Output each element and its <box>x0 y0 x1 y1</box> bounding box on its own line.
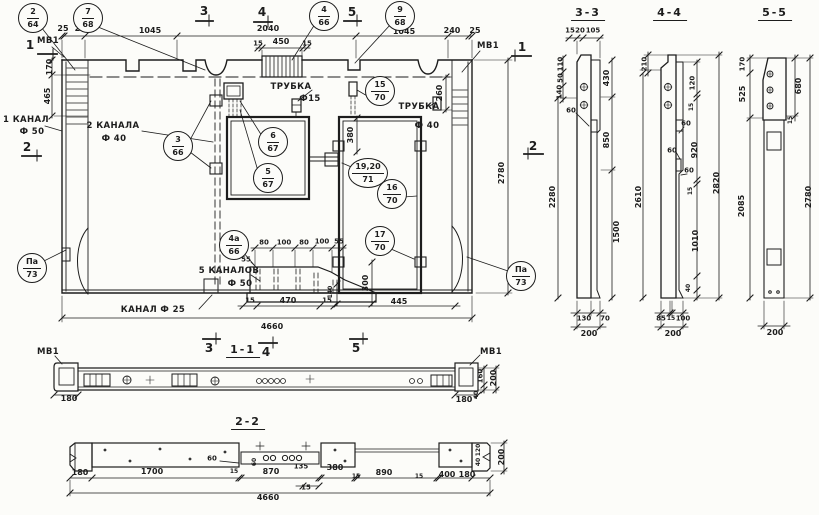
section-mark: 5 <box>352 342 360 354</box>
dim-text: 40 <box>474 391 480 399</box>
dim-text: 15 <box>322 298 332 305</box>
dim-text: 70 <box>600 316 610 323</box>
dim-text: 200 <box>490 370 498 387</box>
section-mark: 1 <box>26 39 34 51</box>
position-callout: 768 <box>73 3 103 33</box>
callout-sheet: 66 <box>228 246 239 256</box>
dim-text: 200 <box>767 329 784 337</box>
dim-text: 80 <box>259 240 269 247</box>
tube-dia: Ф 40 <box>415 122 440 131</box>
dim-text: 850 <box>603 132 611 149</box>
position-callout: Па73 <box>506 261 536 291</box>
dim-text: 2610 <box>635 186 643 208</box>
canal25-label: КАНАЛ Ф 25 <box>121 306 185 315</box>
dim-text: 380 <box>347 127 355 144</box>
dim-text: 15 <box>352 474 360 480</box>
tube-label: ТРУБКА <box>271 83 312 92</box>
annotation-layer: МВ1МВ11 КАНАЛФ 502 КАНАЛАФ 40ТРУБКАФ15ТР… <box>0 0 819 515</box>
section-mark: 4 <box>258 6 266 18</box>
dim-text: 25 <box>469 27 480 35</box>
callout-position: 16 <box>383 183 400 194</box>
canals5-label: 5 КАНАЛОВ <box>199 267 259 276</box>
dim-text: 60 <box>667 148 677 155</box>
dim-text: 55 <box>241 257 251 264</box>
section-title: 2-2 <box>231 416 265 430</box>
position-callout: 466 <box>309 1 339 31</box>
dim-text: 470 <box>280 297 297 305</box>
dim-text: 2780 <box>498 162 506 184</box>
dim-text: 920 <box>691 142 699 159</box>
callout-position: Па <box>23 257 41 268</box>
mv1-label: МВ1 <box>480 348 502 357</box>
dim-text: 200 <box>665 330 682 338</box>
dim-text: 200 <box>498 449 506 466</box>
section-mark: 1 <box>518 41 526 53</box>
dim-text: 2040 <box>257 25 279 33</box>
canal2-dia: Ф 40 <box>102 135 127 144</box>
dim-text: 15 <box>565 28 575 35</box>
dim-text: 4660 <box>261 323 283 331</box>
dim-text: 105 <box>586 28 601 35</box>
drawing-sheet: МВ1МВ11 КАНАЛФ 502 КАНАЛАФ 40ТРУБКАФ15ТР… <box>0 0 819 515</box>
dim-text: 210 <box>642 57 649 72</box>
dim-text: 120 <box>476 444 482 457</box>
dim-text: 260 <box>436 85 444 102</box>
callout-sheet: 70 <box>374 92 385 102</box>
dim-text: 135 <box>294 464 309 471</box>
dim-text: 2820 <box>713 172 721 194</box>
position-callout: 1570 <box>365 76 395 106</box>
dim-text: 110 <box>558 57 565 72</box>
callout-sheet: 67 <box>262 179 273 189</box>
dim-text: 60 <box>252 458 258 466</box>
dim-text: 1045 <box>139 27 161 35</box>
position-callout: Па73 <box>17 253 47 283</box>
dim-text: 25 <box>57 25 68 33</box>
dim-text: 40 <box>686 284 692 292</box>
callout-position: Па <box>512 265 530 276</box>
callout-sheet: 70 <box>386 195 397 205</box>
position-callout: 667 <box>258 127 288 157</box>
callout-position: 19,20 <box>352 162 383 173</box>
dim-text: 85 <box>656 316 666 323</box>
dim-text: 20 <box>575 28 585 35</box>
dim-text: 15 <box>415 474 423 480</box>
dim-text: 15 <box>245 298 255 305</box>
callout-position: 6 <box>267 131 279 142</box>
callout-sheet: 68 <box>394 17 405 27</box>
position-callout: 1770 <box>365 226 395 256</box>
callout-position: 3 <box>172 135 184 146</box>
section-title: 5-5 <box>758 7 792 21</box>
dim-text: 2085 <box>738 195 746 217</box>
callout-sheet: 70 <box>374 242 385 252</box>
callout-sheet: 66 <box>318 17 329 27</box>
dim-text: 200 <box>581 330 598 338</box>
dim-text: 15 <box>788 116 794 124</box>
callout-sheet: 68 <box>82 19 93 29</box>
canal1-dia: Ф 50 <box>20 128 45 137</box>
callout-position: 15 <box>371 80 388 91</box>
dim-text: 380 <box>327 464 344 472</box>
dim-text: 465 <box>44 88 52 105</box>
dim-text: 2780 <box>805 186 813 208</box>
callout-sheet: 64 <box>27 19 38 29</box>
dim-text: 180 <box>459 471 476 479</box>
dim-text: 4660 <box>257 494 279 502</box>
dim-text: 130 <box>577 316 592 323</box>
callout-sheet: 73 <box>515 277 526 287</box>
dim-text: 15 <box>230 469 238 475</box>
dim-text: 60 <box>684 168 694 175</box>
dim-text: 680 <box>795 78 803 95</box>
dim-text: 15 <box>302 41 312 48</box>
callout-position: 17 <box>371 230 388 241</box>
dim-text: 870 <box>263 468 280 476</box>
section-title: 3-3 <box>571 7 605 21</box>
callout-position: 9 <box>394 5 406 16</box>
dim-text: 15 <box>689 103 695 111</box>
canals5-dia: Ф 50 <box>228 280 253 289</box>
dim-text: 80 <box>299 240 309 247</box>
dim-text: 430 <box>603 70 611 87</box>
dim-text: 450 <box>273 38 290 46</box>
callout-position: 4 <box>318 5 330 16</box>
dim-text: 15 <box>253 41 263 48</box>
dim-text: 890 <box>376 469 393 477</box>
callout-sheet: 67 <box>267 143 278 153</box>
dim-text: 140 <box>557 85 564 100</box>
position-callout: 366 <box>163 131 193 161</box>
position-callout: 264 <box>18 3 48 33</box>
dim-text: 100 <box>676 316 691 323</box>
dim-text: 180 <box>61 395 78 403</box>
dim-text: 15 <box>667 316 675 322</box>
section-mark: 2 <box>23 141 31 153</box>
dim-text: 60 <box>207 456 217 463</box>
dim-text: 60 <box>681 121 691 128</box>
section-mark: 5 <box>348 6 356 18</box>
section-mark: 4 <box>262 346 270 358</box>
dim-text: 60 <box>566 108 576 115</box>
callout-position: 7 <box>82 7 94 18</box>
dim-text: 160 <box>478 369 485 384</box>
section-mark: 2 <box>529 140 537 152</box>
position-callout: 1670 <box>377 179 407 209</box>
dim-text: 100 <box>277 240 292 247</box>
position-callout: 968 <box>385 1 415 31</box>
section-mark: 3 <box>205 342 213 354</box>
dim-text: 120 <box>690 76 697 91</box>
position-callout: 567 <box>253 163 283 193</box>
callout-position: 5 <box>262 167 274 178</box>
dim-text: 2280 <box>549 186 557 208</box>
dim-text: 170 <box>46 59 54 76</box>
dim-text: 180 <box>72 469 89 477</box>
callout-sheet: 66 <box>172 147 183 157</box>
canal1-label: 1 КАНАЛ <box>3 116 49 125</box>
callout-sheet: 71 <box>362 174 373 184</box>
section-title: 1-1 <box>226 344 260 358</box>
dim-text: 1700 <box>141 468 163 476</box>
mv1-label: МВ1 <box>37 37 59 46</box>
dim-text: 15 <box>301 485 311 492</box>
position-callout: 4а66 <box>219 230 249 260</box>
dim-text: 55 <box>334 239 344 246</box>
dim-text: 1500 <box>613 221 621 243</box>
mv1-label: МВ1 <box>477 42 499 51</box>
dim-text: 50 <box>558 73 565 83</box>
dim-text: 100 <box>315 239 330 246</box>
callout-position: 2 <box>27 7 39 18</box>
mv1-label: МВ1 <box>37 348 59 357</box>
callout-position: 4а <box>226 234 243 245</box>
dim-text: 170 <box>740 57 747 72</box>
section-mark: 3 <box>200 5 208 17</box>
dim-text: 400 <box>439 471 456 479</box>
dim-text: 1010 <box>692 230 700 252</box>
dim-text: 15 <box>688 187 694 195</box>
tube-dia: Ф15 <box>299 95 320 104</box>
dim-text: 180 <box>456 396 473 404</box>
dim-text: 240 <box>444 27 461 35</box>
dim-text: 525 <box>739 86 747 103</box>
section-title: 4-4 <box>653 7 687 21</box>
dim-text: 300 <box>362 275 370 292</box>
canal2-label: 2 КАНАЛА <box>87 122 140 131</box>
callout-sheet: 73 <box>26 269 37 279</box>
dim-text: 445 <box>391 298 408 306</box>
tube-label: ТРУБКА <box>399 103 440 112</box>
dim-text: 40 <box>476 458 482 466</box>
